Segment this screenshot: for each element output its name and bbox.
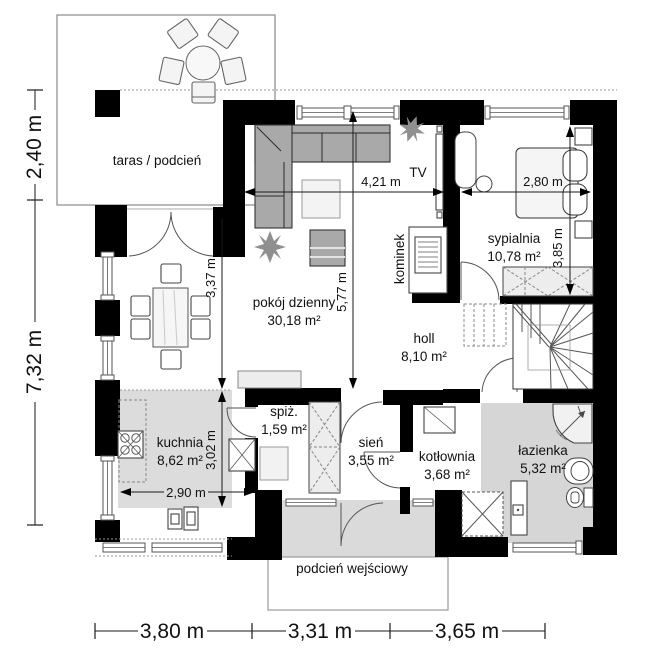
label-sypialnia: sypialnia [488, 231, 541, 246]
window-left-2 [101, 336, 114, 380]
area-holl: 8,10 m² [401, 349, 447, 364]
label-taras: taras / podcień [113, 153, 202, 168]
washing-machine [462, 492, 503, 536]
terrace-french-door [127, 209, 213, 256]
floor-plan-drawing: 4,21 m 2,80 m 5,77 m 3,37 m 3,02 m 3,85 … [0, 0, 660, 670]
window-bathroom-south [513, 541, 582, 554]
stairs-upper-dashed [464, 304, 506, 346]
dim-bottom-right: 3,65 m [435, 620, 499, 643]
nightstand [575, 221, 592, 238]
tv-set [436, 126, 443, 218]
living-room-furniture [238, 112, 447, 388]
console-table [238, 371, 301, 388]
dim-kitchen-width: 2,90 m [166, 485, 206, 500]
fireplace [409, 227, 447, 293]
dim-dining-height: 3,37 m [203, 258, 218, 298]
bathroom-door [482, 358, 517, 392]
nightstand [575, 128, 592, 145]
terrace-table [186, 46, 220, 80]
label-kotlownia: kotłownia [419, 449, 476, 464]
window-left-1 [101, 252, 114, 300]
dim-terrace-depth: 2,40 m [23, 115, 46, 179]
floor-plan: 4,21 m 2,80 m 5,77 m 3,37 m 3,02 m 3,85 … [0, 0, 660, 670]
pillow [563, 184, 587, 215]
pantry-shelf [260, 447, 288, 480]
label-sien: sień [359, 435, 384, 450]
fridge [229, 439, 255, 471]
entry-sidelight-left [286, 499, 336, 506]
label-tv: TV [409, 165, 426, 180]
pillow [563, 150, 587, 181]
bathroom-cabinet [511, 481, 527, 535]
area-spiz: 1,59 m² [261, 422, 307, 437]
toilet [567, 488, 594, 508]
chair [161, 264, 181, 283]
bedroom-door [461, 262, 499, 300]
stove [118, 431, 143, 458]
stairs [464, 304, 593, 389]
label-kuchnia: kuchnia [157, 435, 204, 450]
bedroom-wardrobe [503, 267, 593, 296]
area-kotlownia: 3,68 m² [424, 467, 470, 482]
label-holl: holl [413, 331, 434, 346]
chair [161, 350, 181, 369]
bedroom-furniture [455, 128, 593, 296]
chair [191, 296, 210, 316]
chair [191, 319, 210, 339]
boiler [424, 407, 455, 433]
dining-set [131, 264, 210, 369]
label-kominek: kominek [392, 234, 407, 285]
entry-sidelight-right [413, 499, 433, 506]
chair [131, 319, 150, 339]
coffee-table [302, 180, 340, 218]
dim-bottom-middle: 3,31 m [288, 620, 352, 643]
dim-bedroom-width: 2,80 m [523, 174, 563, 189]
window-living-top [297, 106, 399, 119]
dim-kitchen-height: 3,02 m [203, 430, 218, 470]
label-lazienka: łazienka [518, 443, 568, 458]
label-pokoj-dzienny: pokój dzienny [253, 295, 336, 310]
area-sien: 3,55 m² [348, 453, 394, 468]
dim-living-width: 4,21 m [361, 174, 401, 189]
ottoman [310, 230, 345, 266]
armchair [455, 132, 476, 188]
entry-porch-floor [282, 500, 435, 557]
dining-table [153, 288, 188, 347]
dim-bedroom-height: 3,85 m [550, 228, 565, 268]
washbasin [564, 458, 593, 484]
area-pokoj-dzienny: 30,18 m² [267, 313, 321, 328]
label-podcien-wejsciowy: podcień wejściowy [296, 561, 408, 576]
window-left-3 [101, 456, 114, 520]
plant-icon [254, 231, 286, 263]
kitchen-sink [168, 507, 198, 530]
area-lazienka: 5,32 m² [520, 461, 566, 476]
area-kuchnia: 8,62 m² [157, 453, 203, 468]
chair [131, 296, 150, 316]
label-spiz: spiż. [270, 404, 298, 419]
hall-closet [309, 402, 340, 493]
dim-house-depth: 7,32 m [23, 330, 46, 394]
window-bedroom-top [485, 106, 569, 119]
dim-bottom-left: 3,80 m [140, 620, 204, 643]
dim-living-height: 5,77 m [334, 272, 349, 312]
side-table [476, 176, 492, 192]
area-sypialnia: 10,78 m² [487, 249, 541, 264]
